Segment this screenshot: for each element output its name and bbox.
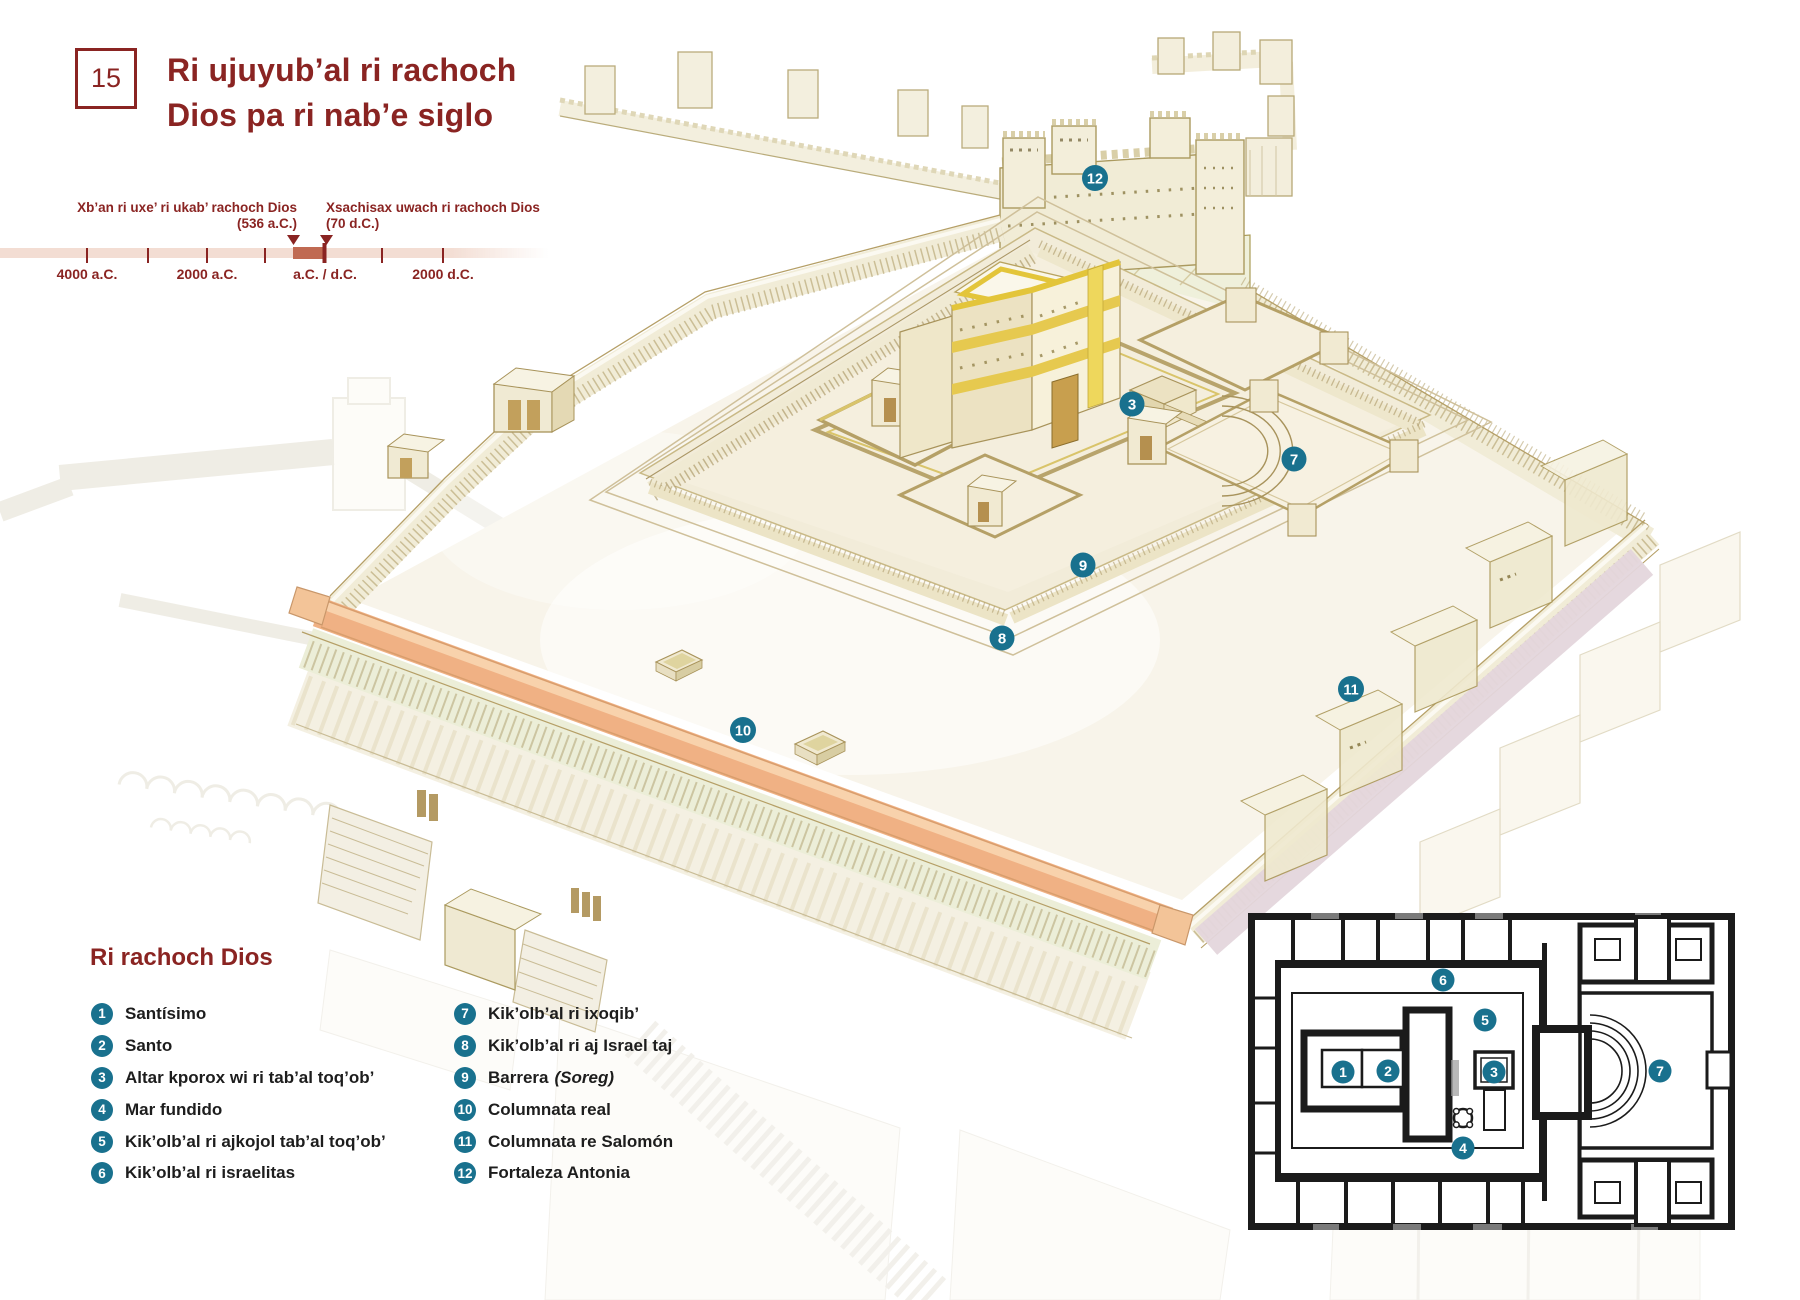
badge-number: 8 [998,631,1006,648]
map-badge-3: 3 [1120,392,1145,417]
timeline-event2-label: Xsachisax uwach ri rachoch Dios [326,200,566,216]
map-badge-11: 11 [1338,676,1364,702]
legend-item-7: 7 Kik’olb’al ri ixoqib’ [454,998,673,1030]
legend-label-6: Kik’olb’al ri israelitas [125,1163,295,1183]
badge-number: 7 [1656,1063,1664,1079]
legend-label-1: Santísimo [125,1004,206,1024]
legend-item-12: 12 Fortaleza Antonia [454,1157,673,1189]
legend-item-9: 9 Barrera (Soreg) [454,1062,673,1094]
page-title: Ri ujuyub’al ri rachoch Dios pa ri nab’e… [167,48,517,138]
timeline-bar [0,248,548,258]
badge-number: 1 [1339,1064,1347,1080]
map-badge-10: 10 [730,717,756,743]
badge-number: 3 [1490,1064,1498,1080]
legend-item-8: 8 Kik’olb’al ri aj Israel taj [454,1030,673,1062]
legend-label-3: Altar kporox wi ri tab’al toq’ob’ [125,1068,374,1088]
legend-badge-4: 4 [91,1099,113,1121]
timeline-zero-marker [323,243,327,263]
plan-badge-1: 1 [1332,1061,1355,1084]
legend-badge-7: 7 [454,1003,476,1025]
city-wall-left [560,52,1005,200]
northwest-gatehouse-large [494,368,574,432]
badge-number: 10 [735,724,751,740]
legend-label-8: Kik’olb’al ri aj Israel taj [488,1036,672,1056]
event1-arrow-icon [287,235,300,245]
plan-badge-7: 7 [1649,1060,1672,1083]
legend-item-1: 1 Santísimo [91,998,386,1030]
legend-label-4: Mar fundido [125,1100,222,1120]
legend-item-11: 11 Columnata re Salomón [454,1126,673,1158]
badge-number: 11 [1343,683,1358,699]
map-badge-9: 9 [1071,553,1096,578]
chapter-number: 15 [91,63,121,94]
timeline-event2-date: (70 d.C.) [326,216,566,232]
legend-label-10: Columnata real [488,1100,611,1120]
legend-badge-2: 2 [91,1035,113,1057]
chapter-number-box: 15 [75,48,137,109]
legend-label-9-italic: (Soreg) [555,1068,615,1088]
plan-badge-3: 3 [1483,1061,1506,1084]
plan-badge-5: 5 [1474,1009,1497,1032]
badge-number: 7 [1290,452,1298,469]
timeline-axis [0,233,580,267]
legend-badge-9: 9 [454,1067,476,1089]
plan-badge-4: 4 [1452,1137,1475,1160]
badge-number: 6 [1439,972,1447,988]
timeline-event1-label: Xb’an ri uxe’ ri ukab’ rachoch Dios [77,200,297,216]
timeline-highlight-segment [293,247,325,259]
map-badge-8: 8 [990,626,1015,651]
northwest-gatehouse-small [388,434,444,478]
timeline-event-temple-rebuilt: Xb’an ri uxe’ ri ukab’ rachoch Dios (536… [77,200,297,232]
legend-item-6: 6 Kik’olb’al ri israelitas [91,1157,386,1189]
badge-number: 12 [1087,172,1103,188]
page-title-line2: Dios pa ri nab’e siglo [167,93,517,138]
tick-label-4000ac: 4000 a.C. [27,266,147,282]
tick-label-2000ac: 2000 a.C. [147,266,267,282]
map-badge-7: 7 [1282,447,1307,472]
legend-badge-3: 3 [91,1067,113,1089]
badge-number: 5 [1481,1012,1489,1028]
badge-number: 3 [1128,397,1136,414]
plan-badge-6: 6 [1432,969,1455,992]
page-title-line1: Ri ujuyub’al ri rachoch [167,48,517,93]
tick-label-acdc: a.C. / d.C. [265,266,385,282]
legend-badge-6: 6 [91,1162,113,1184]
legend-badge-12: 12 [454,1162,476,1184]
badge-number: 2 [1384,1063,1392,1079]
legend-label-12: Fortaleza Antonia [488,1163,630,1183]
legend-heading: Ri rachoch Dios [90,944,273,972]
legend-label-7: Kik’olb’al ri ixoqib’ [488,1004,639,1024]
legend-badge-5: 5 [91,1131,113,1153]
legend-item-2: 2 Santo [91,1030,386,1062]
legend-column-1: 1 Santísimo 2 Santo 3 Altar kporox wi ri… [91,998,386,1189]
legend-badge-1: 1 [91,1003,113,1025]
tick-label-2000dc: 2000 d.C. [383,266,503,282]
legend-badge-11: 11 [454,1131,476,1153]
legend-column-2: 7 Kik’olb’al ri ixoqib’ 8 Kik’olb’al ri … [454,998,673,1189]
plan-badge-2: 2 [1377,1060,1400,1083]
timeline-event1-date: (536 a.C.) [77,216,297,232]
legend-badge-8: 8 [454,1035,476,1057]
event2-arrow-icon [320,235,333,245]
legend-label-11: Columnata re Salomón [488,1132,673,1152]
legend-item-5: 5 Kik’olb’al ri ajkojol tab’al toq’ob’ [91,1126,386,1158]
temple-floor-plan-inset: 1 2 3 4 5 6 7 [1248,913,1735,1230]
plan-east-gate [1707,1052,1731,1088]
badge-number: 4 [1459,1140,1467,1156]
legend-badge-10: 10 [454,1099,476,1121]
legend-label-9: Barrera [488,1068,549,1088]
timeline-event-temple-destroyed: Xsachisax uwach ri rachoch Dios (70 d.C.… [326,200,566,232]
legend-item-4: 4 Mar fundido [91,1094,386,1126]
badge-number: 9 [1079,558,1087,575]
legend-label-2: Santo [125,1036,172,1056]
map-badge-12: 12 [1082,165,1108,191]
legend-label-5: Kik’olb’al ri ajkojol tab’al toq’ob’ [125,1132,386,1152]
plan-molten-sea [1454,1109,1473,1128]
legend-item-10: 10 Columnata real [454,1094,673,1126]
legend-item-3: 3 Altar kporox wi ri tab’al toq’ob’ [91,1062,386,1094]
